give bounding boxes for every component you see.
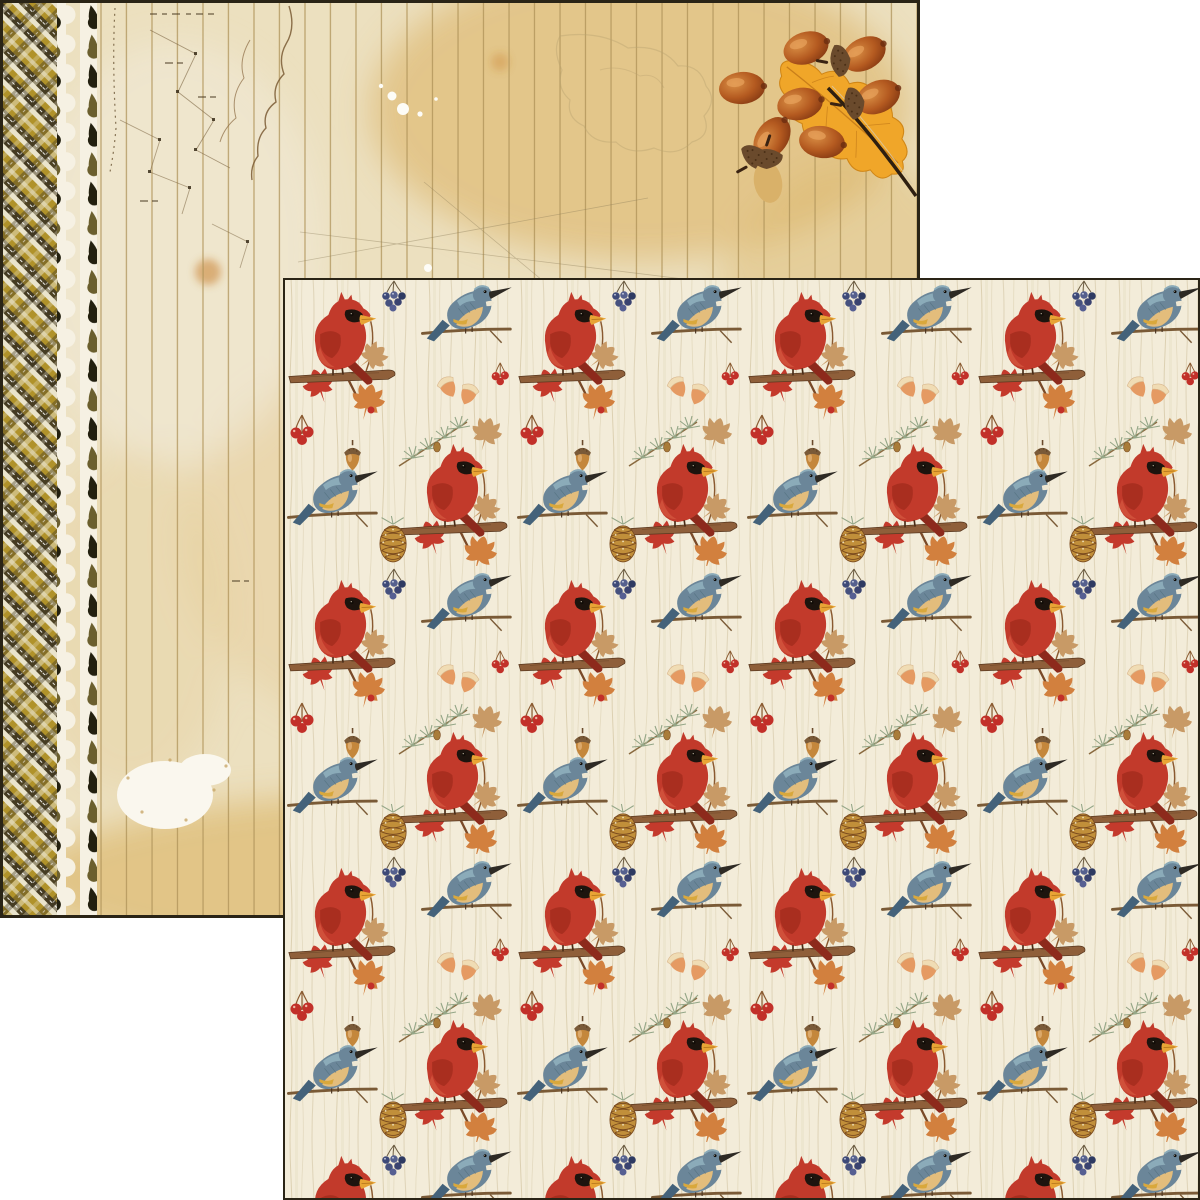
spiral-holes-edge xyxy=(57,0,97,918)
scrapbook-paper-product-image xyxy=(0,0,1200,1200)
front-sheet-art xyxy=(283,278,1200,1200)
front-sheet-bird-pattern-side xyxy=(283,278,1200,1200)
plaid-edge xyxy=(0,0,57,918)
bird-pattern xyxy=(283,278,1200,1200)
